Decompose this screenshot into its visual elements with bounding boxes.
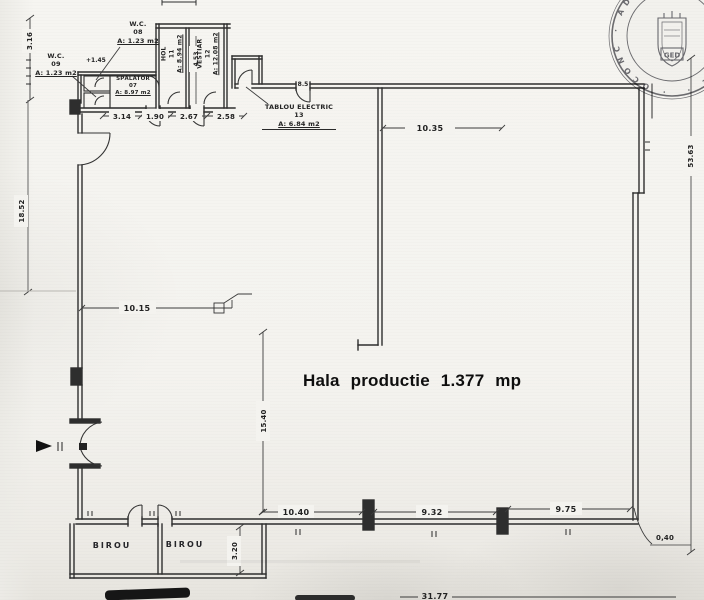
dimension-lines <box>0 15 695 597</box>
entrance-marks <box>58 442 62 451</box>
dim-right-span-label: 53.63 <box>687 144 695 167</box>
room-label-wc-08: W.C. 08 A: 1.23 m2 <box>112 20 164 45</box>
room-area: A: 12.08 m2 <box>212 24 220 84</box>
scanned-floorplan-page: 3.16 18.52 3.14 1.90 2.67 2.58 4.53 8.5 … <box>0 0 704 600</box>
room-name: TABLOU ELECTRIC <box>262 103 336 111</box>
level-annex-label: +1.45 <box>86 57 106 64</box>
room-name: HOL <box>160 27 168 81</box>
room-label-vestiar: VESTIAR 12 A: 12.08 m2 <box>196 24 219 84</box>
dim-overall-width-label: 31.77 <box>422 592 449 600</box>
dim-birou-depth-label: 3.20 <box>231 542 239 560</box>
room-number: 12 <box>204 24 212 84</box>
room-name: VESTIAR <box>196 24 204 84</box>
door-swings <box>78 70 310 519</box>
room-area: A: 1.23 m2 <box>28 69 84 77</box>
room-name: SPĂLĂTOR <box>109 76 157 83</box>
room-label-wc-09: W.C. 09 A: 1.23 m2 <box>28 52 84 77</box>
dim-annex-w2-label: 1.90 <box>146 113 164 121</box>
dim-bottom-span3-label: 9.75 <box>556 505 577 514</box>
dim-inner-height-label: 15.40 <box>260 409 268 432</box>
floorplan-drawing: 3.16 18.52 3.14 1.90 2.67 2.58 4.53 8.5 … <box>0 0 704 600</box>
room-number: 11 <box>168 27 176 81</box>
hall-title: Hala productie 1.377 mp <box>303 371 521 391</box>
room-label-birou-left: BIROU <box>88 541 136 550</box>
room-area: A: 8.94 m2 <box>176 27 184 81</box>
dim-annex-w4-label: 2.58 <box>217 113 235 121</box>
dim-bottom-span1-label: 10.40 <box>283 508 310 517</box>
room-area: A: 1.23 m2 <box>112 37 164 45</box>
room-name: W.C. <box>112 20 164 28</box>
small-tick-marks <box>26 60 650 537</box>
dim-right-offset-label: 0,40 <box>656 534 674 542</box>
room-number: 07 <box>109 83 157 90</box>
room-label-hol: HOL 11 A: 8.94 m2 <box>160 27 183 81</box>
dim-annex-w1-label: 3.14 <box>113 113 131 121</box>
dim-bottom-span2-label: 9.32 <box>422 508 443 517</box>
room-area: A: 8.97 m2 <box>109 90 157 97</box>
dimension-labels: 3.16 18.52 3.14 1.90 2.67 2.58 4.53 8.5 … <box>14 29 698 600</box>
room-area: A: 6.84 m2 <box>262 120 336 128</box>
dim-annex-w3-label: 2.67 <box>180 113 198 121</box>
room-label-tablou-electric: TABLOU ELECTRIC 13 A: 6.84 m2 <box>262 103 336 130</box>
dim-left-top-label: 3.16 <box>26 32 34 50</box>
dim-door-top-label: 8.5 <box>298 81 309 88</box>
room-number: 08 <box>112 28 164 36</box>
dim-top-span-label: 10.35 <box>417 124 444 133</box>
dim-inner-width-label: 10.15 <box>124 304 151 313</box>
room-name: W.C. <box>28 52 84 60</box>
walls <box>70 0 652 578</box>
room-number: 13 <box>262 111 336 119</box>
room-number: 09 <box>28 60 84 68</box>
entrance-arrow-icon <box>36 440 52 452</box>
stamp-center-text: GED <box>664 52 681 60</box>
room-label-spalator: SPĂLĂTOR 07 A: 8.97 m2 <box>109 76 157 97</box>
dim-left-mid-label: 18.52 <box>18 199 26 222</box>
room-label-birou-right: BIROU <box>160 540 210 549</box>
